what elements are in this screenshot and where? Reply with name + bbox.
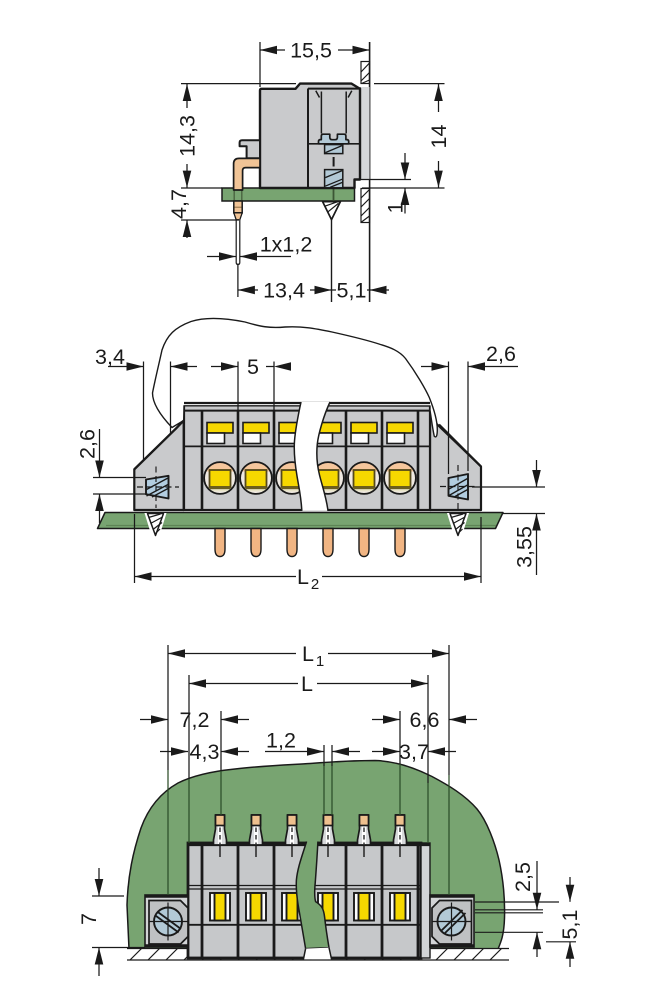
svg-text:5,1: 5,1 <box>558 910 582 940</box>
svg-text:2,6: 2,6 <box>76 429 100 459</box>
svg-text:15,5: 15,5 <box>290 39 332 63</box>
svg-text:5: 5 <box>247 355 259 379</box>
svg-text:7: 7 <box>77 913 101 925</box>
svg-text:1: 1 <box>316 653 324 670</box>
svg-text:14,3: 14,3 <box>176 115 200 157</box>
svg-text:5,1: 5,1 <box>337 279 367 303</box>
svg-text:L: L <box>297 565 309 589</box>
svg-text:7,2: 7,2 <box>180 708 210 732</box>
svg-text:1: 1 <box>384 202 408 214</box>
svg-text:6,6: 6,6 <box>410 708 440 732</box>
svg-text:3,7: 3,7 <box>399 740 429 764</box>
svg-text:2,6: 2,6 <box>486 342 516 366</box>
svg-text:13,4: 13,4 <box>263 279 305 303</box>
svg-text:14: 14 <box>427 125 451 149</box>
svg-text:2: 2 <box>311 576 319 593</box>
svg-text:1,2: 1,2 <box>266 729 296 753</box>
svg-text:L: L <box>302 642 314 666</box>
svg-text:3,55: 3,55 <box>513 526 537 568</box>
svg-text:L: L <box>301 672 313 696</box>
svg-text:4,7: 4,7 <box>167 189 191 219</box>
svg-text:1x1,2: 1x1,2 <box>260 233 313 257</box>
svg-text:2,5: 2,5 <box>511 862 535 892</box>
svg-text:3,4: 3,4 <box>95 345 125 369</box>
svg-text:4,3: 4,3 <box>190 740 220 764</box>
